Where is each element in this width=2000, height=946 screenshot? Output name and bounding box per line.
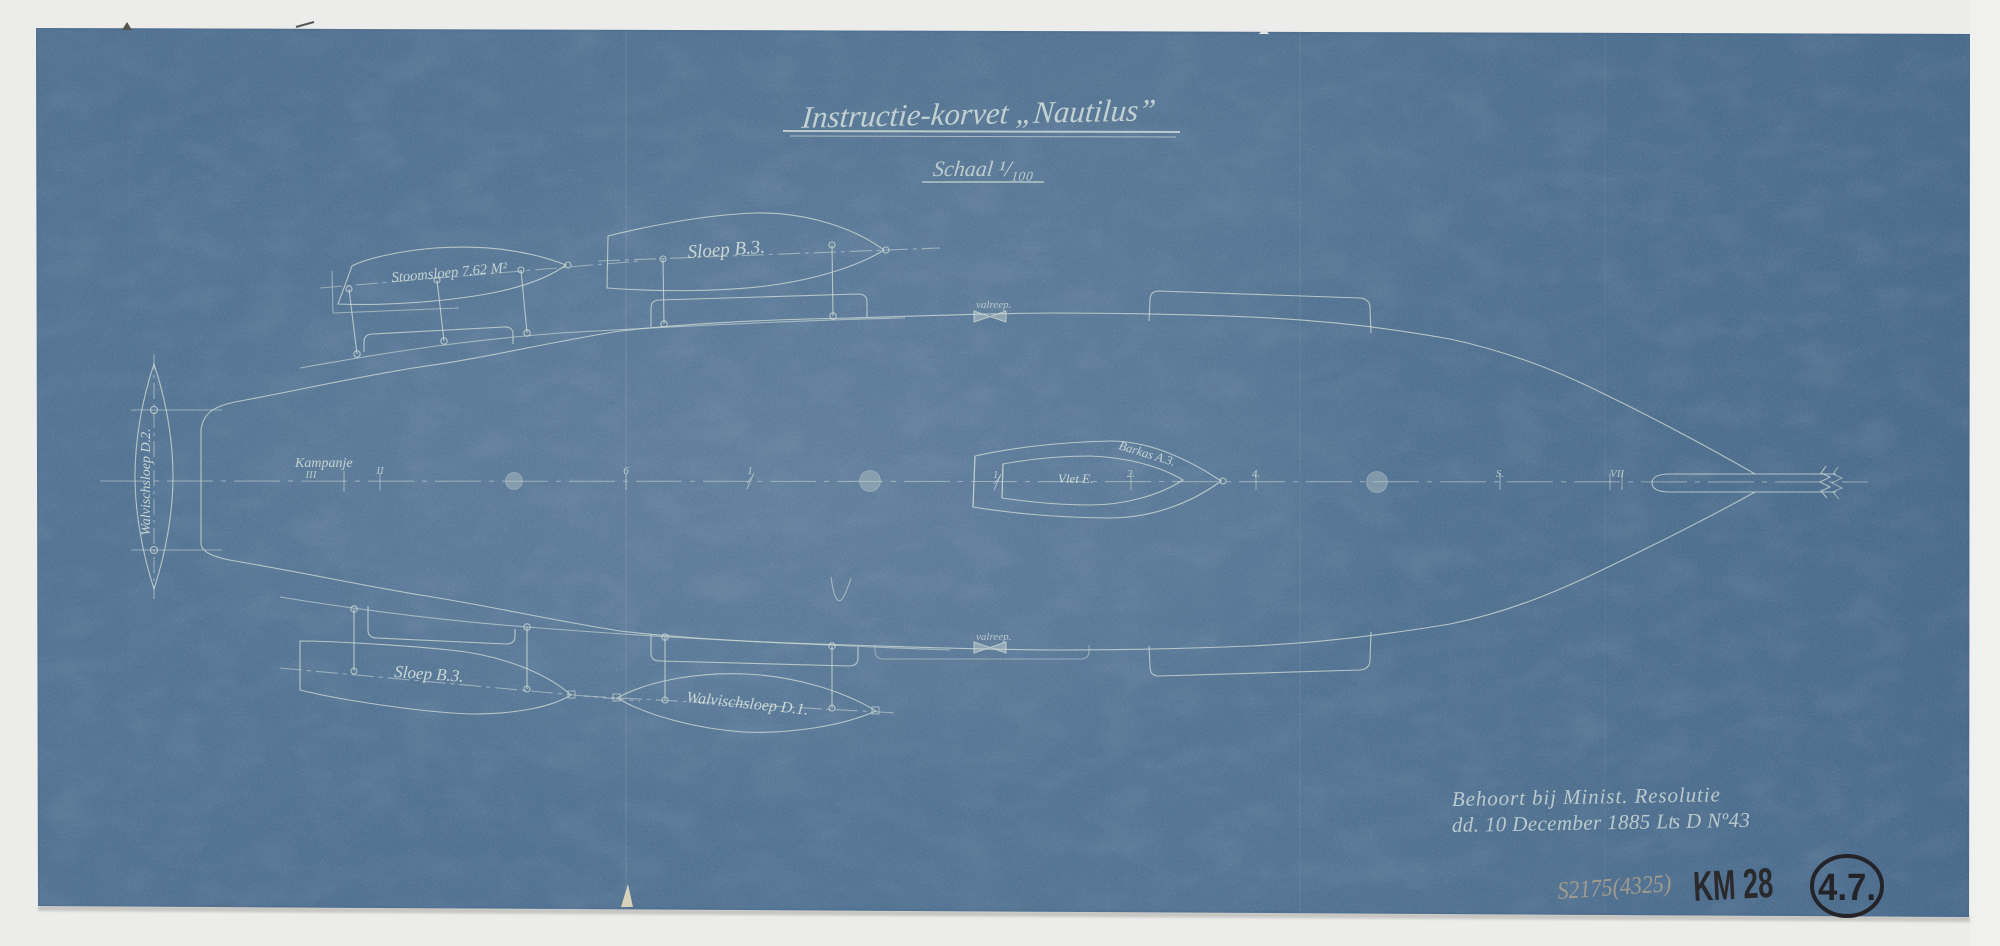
svg-text:KM 28: KM 28 <box>1692 859 1774 910</box>
svg-text:II: II <box>375 465 385 477</box>
svg-text:III: III <box>305 469 318 481</box>
svg-text:Schaal ¹/₁₀₀: Schaal ¹/₁₀₀ <box>932 156 1036 181</box>
svg-text:valreep.: valreep. <box>976 631 1011 643</box>
svg-text:6: 6 <box>623 465 629 477</box>
svg-text:VII: VII <box>1610 468 1625 480</box>
svg-text:S.: S. <box>1496 468 1504 480</box>
svg-text:valreep.: valreep. <box>976 299 1011 311</box>
svg-text:1: 1 <box>747 465 753 477</box>
svg-text:Kampanje: Kampanje <box>294 456 353 471</box>
svg-text:2.: 2. <box>1127 468 1135 480</box>
svg-text:1.: 1. <box>993 469 1001 481</box>
svg-text:4.: 4. <box>1252 468 1260 480</box>
svg-text:Vlet E.: Vlet E. <box>1058 471 1093 486</box>
svg-text:4.7.: 4.7. <box>1818 867 1876 909</box>
svg-text:Walvischsloep D.2.: Walvischsloep D.2. <box>139 428 154 535</box>
svg-text:Behoort bij Minist. Resolutie: Behoort bij Minist. Resolutie <box>1452 782 1720 811</box>
